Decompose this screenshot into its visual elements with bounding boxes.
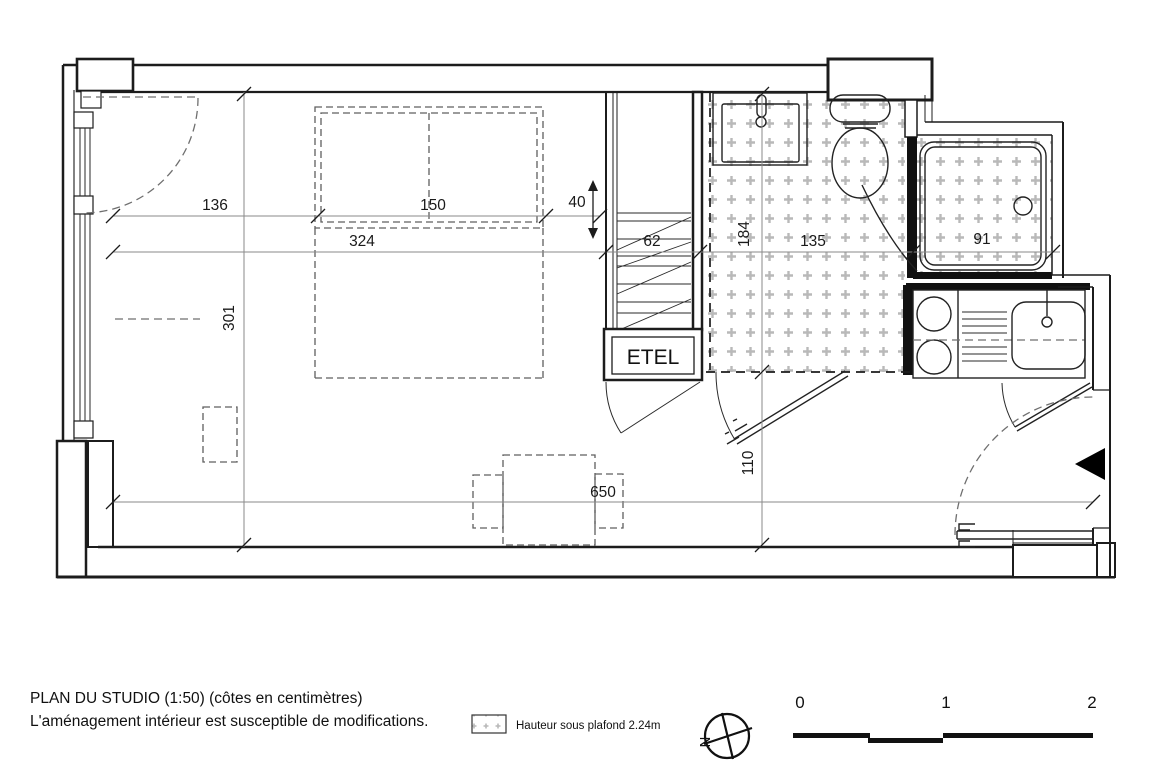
floor-plan-page: ETEL — [0, 0, 1151, 771]
plan-subtitle: L'aménagement intérieur est susceptible … — [30, 713, 428, 730]
legend: Hauteur sous plafond 2.24m — [472, 715, 660, 733]
kitchenette — [913, 290, 1085, 378]
dim-136: 136 — [202, 197, 228, 214]
dim-40: 40 — [568, 194, 586, 211]
dim-184: 184 — [736, 221, 753, 247]
dim-650: 650 — [590, 484, 616, 501]
cooktop-burner-icon — [917, 297, 951, 331]
dim-301: 301 — [221, 305, 238, 331]
cooktop-burner-icon — [917, 340, 951, 374]
scale-tick-1: 1 — [941, 693, 950, 712]
title-block: PLAN DU STUDIO (1:50) (côtes en centimèt… — [30, 690, 428, 730]
pillar-top-right — [828, 59, 932, 100]
window-swing — [83, 97, 200, 319]
door-hinge-icon — [959, 524, 975, 547]
legend-hatch-swatch — [472, 715, 506, 733]
drainer-lines — [962, 312, 1007, 361]
north-label: N — [696, 737, 713, 748]
gap-arrow-icon — [588, 180, 598, 239]
dim-135: 135 — [800, 233, 826, 250]
entrance-arrow-icon — [1075, 448, 1105, 480]
etel-cabinet: ETEL — [604, 329, 702, 380]
etel-label: ETEL — [627, 346, 680, 369]
window-left — [74, 112, 93, 438]
kitchen-sink — [1012, 302, 1085, 369]
walls — [57, 59, 1115, 577]
legend-label: Hauteur sous plafond 2.24m — [516, 720, 660, 732]
scale-tick-0: 0 — [795, 693, 804, 712]
kitchen-door — [1002, 383, 1092, 431]
dim-62: 62 — [643, 233, 660, 250]
dim-91: 91 — [973, 231, 990, 248]
floor-plan-drawing: ETEL — [0, 0, 1151, 771]
dim-150: 150 — [420, 197, 446, 214]
sink-tap-icon — [1042, 317, 1052, 327]
dim-324: 324 — [349, 233, 375, 250]
dim-110: 110 — [740, 450, 757, 475]
closet-shelves — [617, 213, 691, 331]
nightstand — [203, 407, 237, 462]
scale-tick-2: 2 — [1087, 693, 1096, 712]
pillar-top-left — [77, 59, 133, 91]
plan-title: PLAN DU STUDIO (1:50) (côtes en centimèt… — [30, 690, 363, 707]
bathroom-hatch-area — [706, 92, 1052, 372]
etel-door — [606, 382, 700, 433]
entrance-door — [955, 397, 1093, 547]
scale-bar: 0 1 2 — [793, 693, 1097, 743]
north-compass-icon: N — [696, 713, 752, 759]
